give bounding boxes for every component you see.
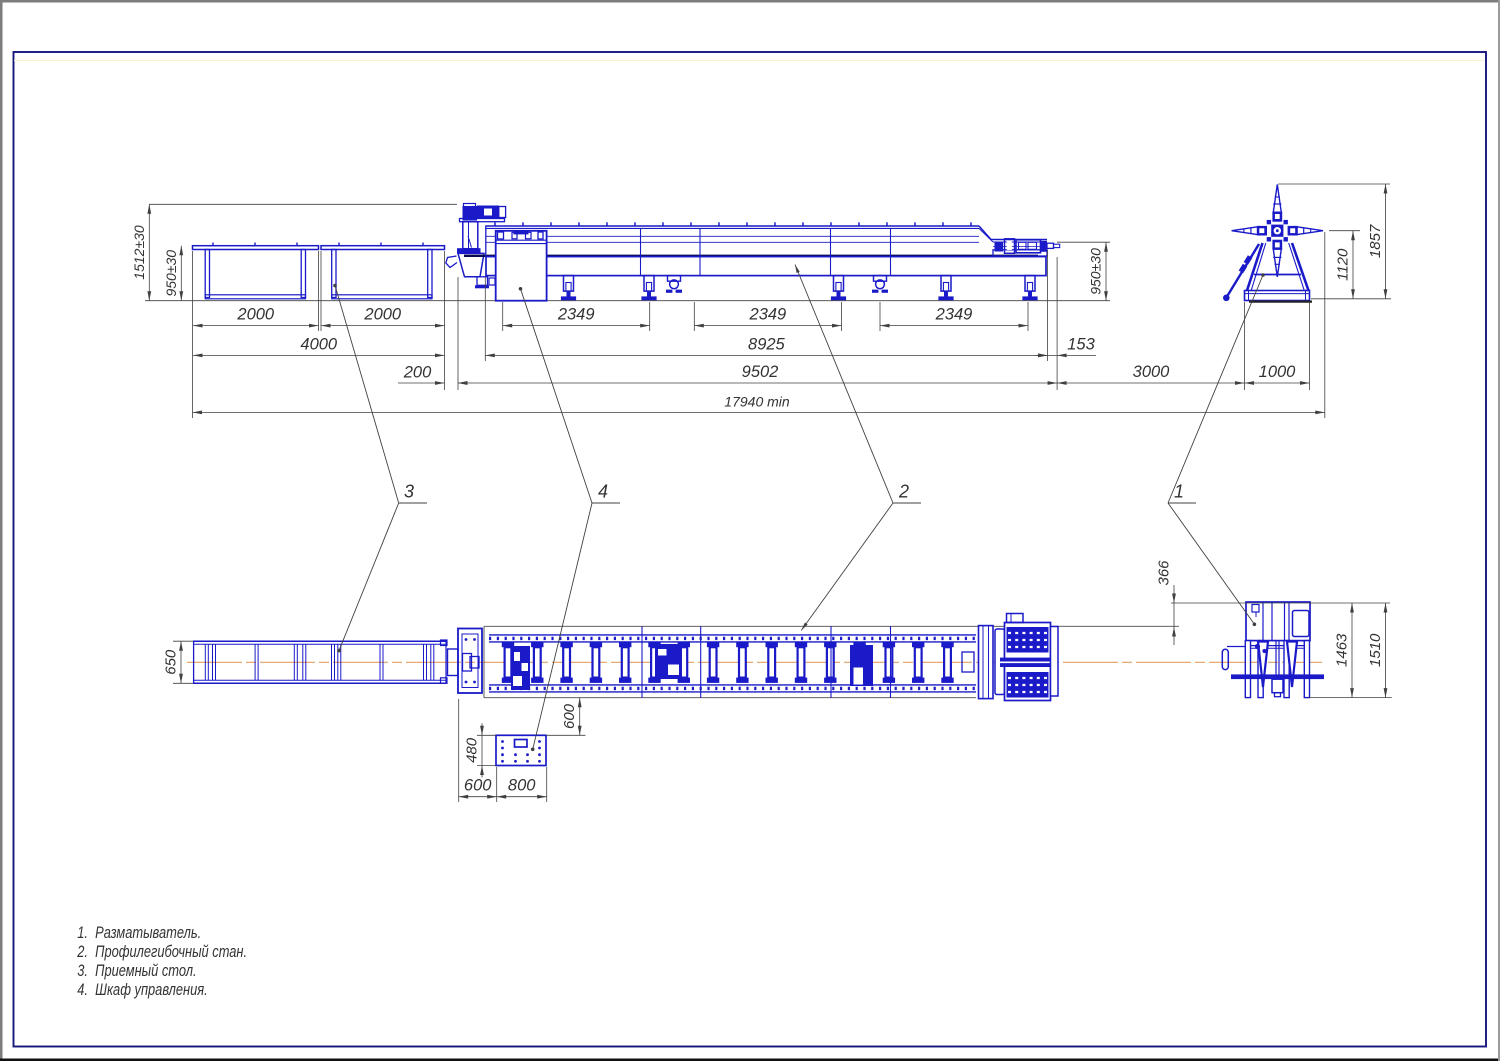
svg-text:4000: 4000 bbox=[300, 335, 338, 353]
svg-text:2000: 2000 bbox=[363, 306, 402, 324]
svg-text:2349: 2349 bbox=[749, 306, 787, 324]
svg-text:600: 600 bbox=[464, 777, 492, 795]
svg-text:Разматыватель.: Разматыватель. bbox=[95, 925, 201, 943]
svg-text:1000: 1000 bbox=[1259, 363, 1297, 381]
svg-text:1512±30: 1512±30 bbox=[131, 225, 147, 280]
svg-text:9502: 9502 bbox=[742, 363, 779, 381]
svg-text:4.: 4. bbox=[77, 982, 88, 1000]
svg-text:Приемный стол.: Приемный стол. bbox=[95, 963, 196, 981]
svg-text:366: 366 bbox=[1156, 560, 1173, 586]
svg-text:153: 153 bbox=[1067, 336, 1095, 354]
svg-text:1857: 1857 bbox=[1367, 224, 1384, 258]
svg-text:2.: 2. bbox=[76, 944, 88, 962]
svg-text:2: 2 bbox=[898, 482, 909, 502]
svg-text:3.: 3. bbox=[77, 963, 88, 981]
svg-text:200: 200 bbox=[403, 364, 432, 382]
svg-text:2349: 2349 bbox=[935, 306, 973, 324]
svg-text:4: 4 bbox=[598, 482, 608, 502]
svg-text:2349: 2349 bbox=[557, 306, 595, 324]
svg-text:1.: 1. bbox=[77, 925, 88, 943]
svg-text:8925: 8925 bbox=[748, 335, 786, 353]
svg-text:3: 3 bbox=[404, 482, 414, 502]
svg-text:1: 1 bbox=[1174, 482, 1184, 502]
svg-text:1510: 1510 bbox=[1367, 633, 1384, 667]
svg-text:1463: 1463 bbox=[1334, 633, 1351, 667]
svg-text:Профилегибочный стан.: Профилегибочный стан. bbox=[95, 944, 247, 962]
svg-text:3000: 3000 bbox=[1133, 363, 1171, 381]
svg-text:480: 480 bbox=[464, 737, 481, 763]
svg-text:600: 600 bbox=[561, 703, 578, 729]
svg-text:Шкаф управления.: Шкаф управления. bbox=[95, 982, 208, 1000]
svg-text:950±30: 950±30 bbox=[163, 250, 179, 297]
svg-text:2000: 2000 bbox=[236, 306, 275, 324]
svg-text:650: 650 bbox=[163, 649, 180, 675]
svg-text:800: 800 bbox=[508, 777, 536, 795]
svg-text:1120: 1120 bbox=[1335, 248, 1352, 281]
svg-text:17940 min: 17940 min bbox=[724, 393, 790, 409]
svg-text:950±30: 950±30 bbox=[1088, 248, 1104, 295]
